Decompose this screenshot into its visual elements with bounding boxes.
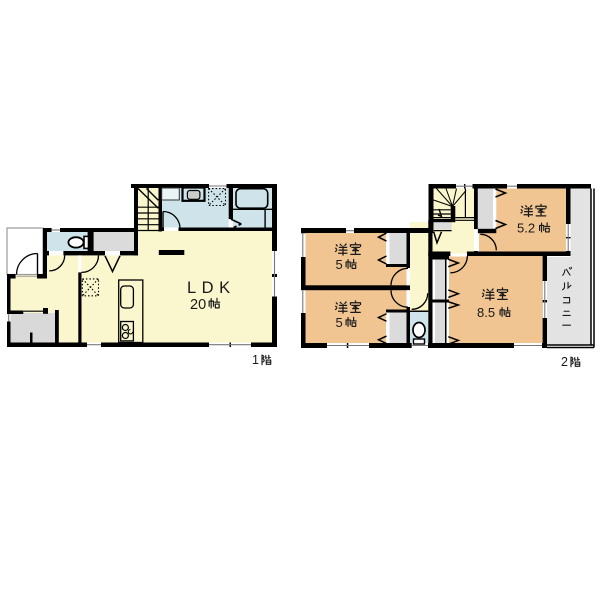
svg-text:5: 5 (336, 315, 343, 330)
svg-text:20: 20 (190, 297, 206, 313)
svg-text:1: 1 (252, 353, 259, 367)
svg-text:5.2: 5.2 (517, 221, 535, 236)
svg-text:LDK: LDK (187, 279, 236, 297)
svg-text:8.5: 8.5 (477, 305, 495, 320)
svg-text:5: 5 (336, 257, 343, 272)
svg-text:2: 2 (561, 355, 568, 369)
